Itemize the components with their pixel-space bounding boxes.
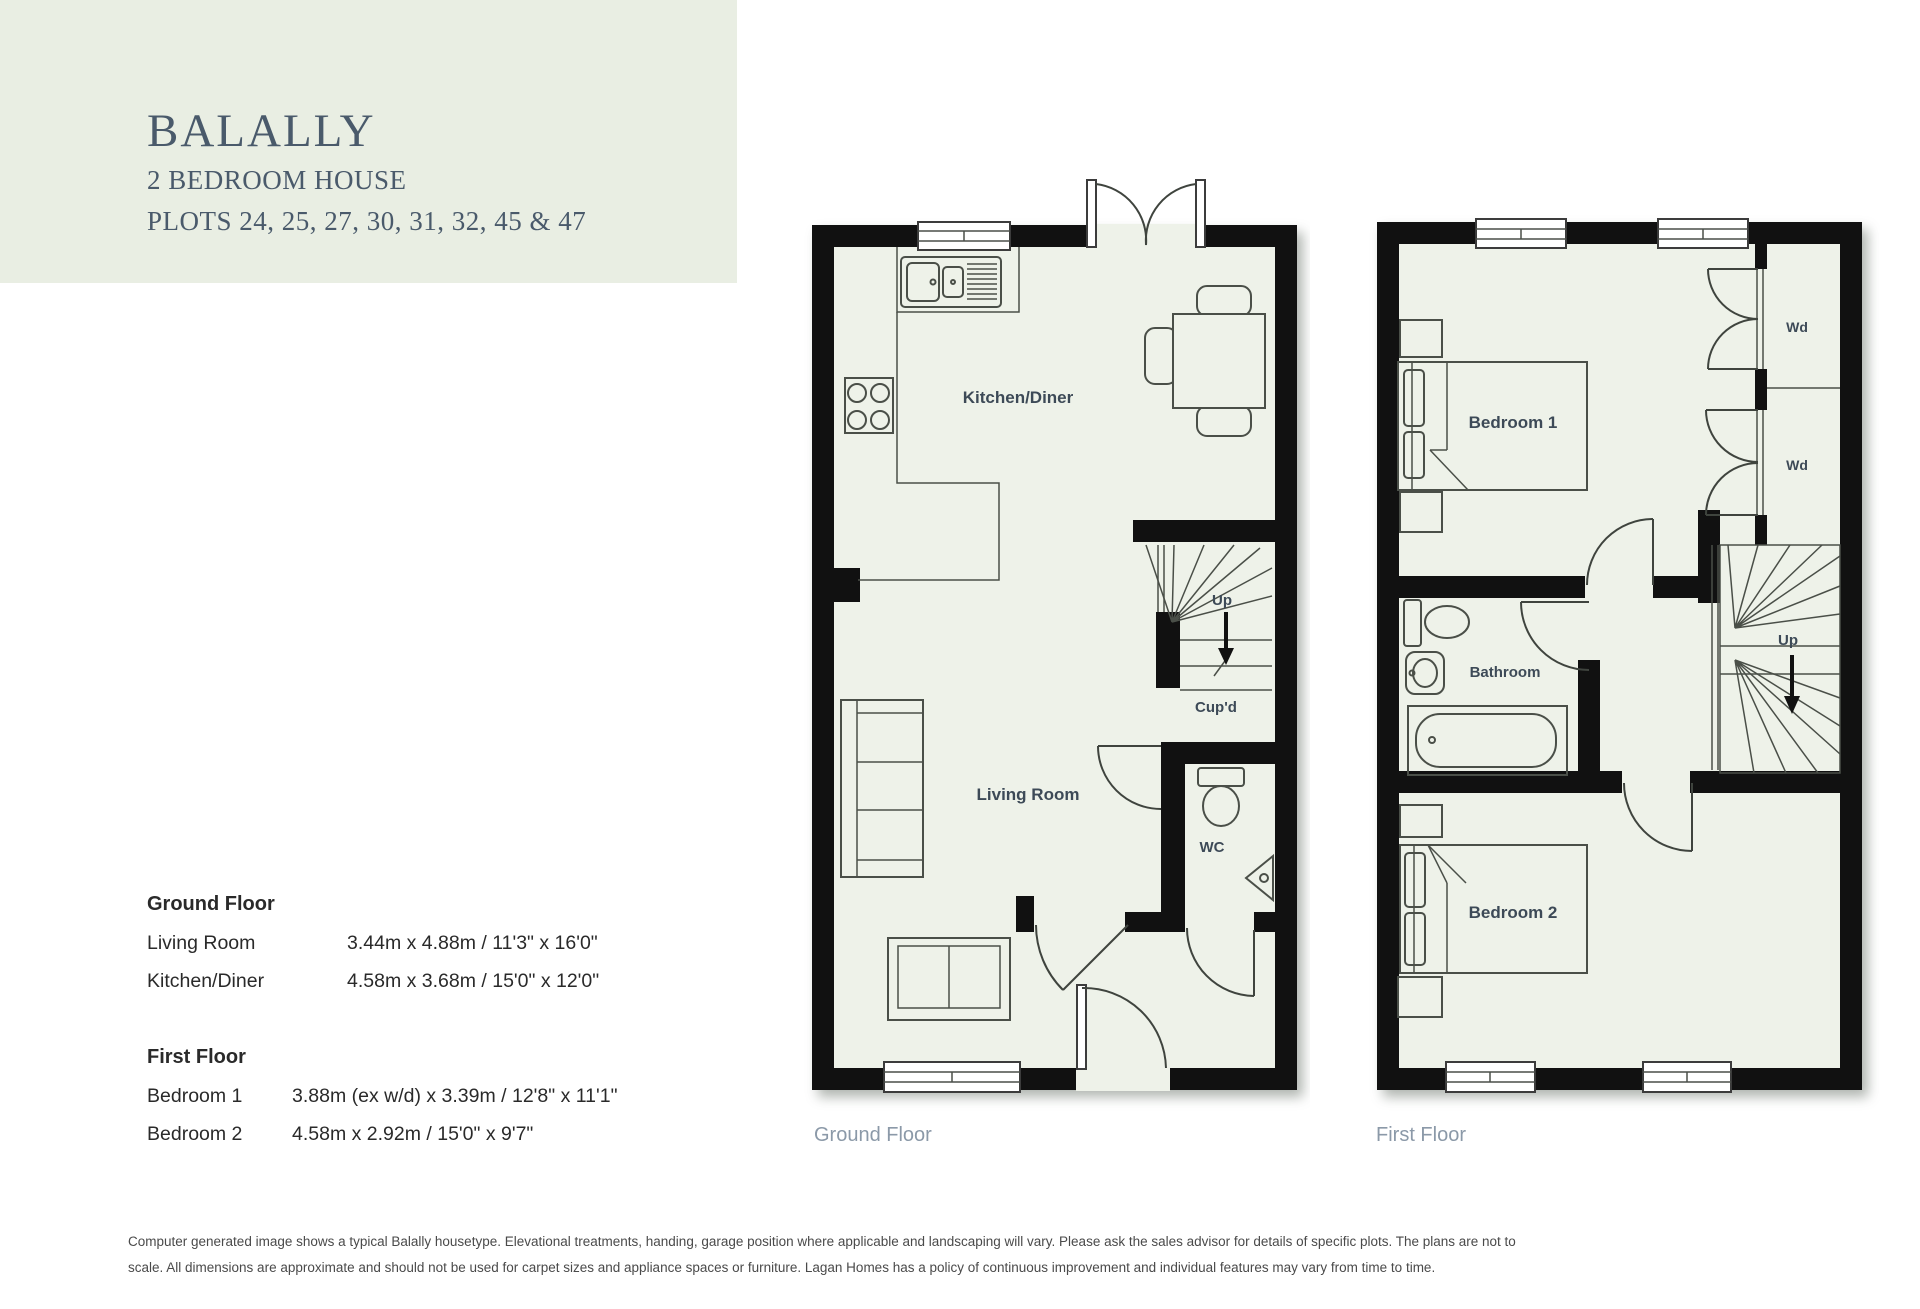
room-name: Bedroom 1	[147, 1085, 292, 1108]
window-icon	[884, 1062, 1020, 1092]
label-wardrobe: Wd	[1786, 457, 1808, 473]
room-size: 3.44m x 4.88m / 11'3" x 16'0"	[347, 932, 598, 955]
ground-floor-plan: Kitchen/Diner Living Room Up Cup'd WC	[770, 140, 1310, 1150]
ground-floor-heading: Ground Floor	[147, 893, 599, 916]
disclaimer-line1: Computer generated image shows a typical…	[128, 1229, 1808, 1255]
page-title: BALALLY	[147, 104, 376, 158]
table-row: Bedroom 2 4.58m x 2.92m / 15'0" x 9'7"	[147, 1123, 618, 1146]
disclaimer-line2: scale. All dimensions are approximate an…	[128, 1255, 1808, 1281]
first-floor-heading: First Floor	[147, 1046, 618, 1069]
room-size: 3.88m (ex w/d) x 3.39m / 12'8" x 11'1"	[292, 1085, 618, 1108]
first-floor-caption: First Floor	[1376, 1124, 1466, 1147]
window-icon	[1446, 1062, 1535, 1092]
room-label-bedroom1: Bedroom 1	[1469, 413, 1558, 432]
first-floor-plan: Bedroom 1 Bedroom 2 Bathroom Up Wd Wd	[1350, 140, 1880, 1150]
ground-floor-caption: Ground Floor	[814, 1124, 932, 1147]
ground-floor-dimensions: Ground Floor Living Room 3.44m x 4.88m /…	[147, 893, 599, 1008]
label-up: Up	[1212, 592, 1232, 609]
disclaimer-text: Computer generated image shows a typical…	[128, 1229, 1808, 1281]
brochure-page: BALALLY 2 BEDROOM HOUSE PLOTS 24, 25, 27…	[0, 0, 1920, 1309]
window-icon	[1643, 1062, 1731, 1092]
room-name: Kitchen/Diner	[147, 970, 347, 993]
table-row: Living Room 3.44m x 4.88m / 11'3" x 16'0…	[147, 932, 599, 955]
plots-list: PLOTS 24, 25, 27, 30, 31, 32, 45 & 47	[147, 206, 586, 237]
window-icon	[1658, 219, 1748, 248]
room-name: Living Room	[147, 932, 347, 955]
room-name: Bedroom 2	[147, 1123, 292, 1146]
label-wc: WC	[1200, 839, 1225, 856]
window-icon	[1476, 219, 1566, 248]
label-wardrobe: Wd	[1786, 319, 1808, 335]
entrance-opening	[1076, 1066, 1170, 1091]
room-label-kitchen-diner: Kitchen/Diner	[963, 388, 1074, 407]
first-floor-dimensions: First Floor Bedroom 1 3.88m (ex w/d) x 3…	[147, 1046, 618, 1161]
first-floor-area	[1399, 244, 1840, 1068]
window-icon	[918, 222, 1010, 250]
page-subtitle: 2 BEDROOM HOUSE	[147, 165, 407, 196]
table-row: Kitchen/Diner 4.58m x 3.68m / 15'0" x 12…	[147, 970, 599, 993]
room-size: 4.58m x 3.68m / 15'0" x 12'0"	[347, 970, 599, 993]
label-up: Up	[1778, 632, 1798, 649]
label-cupboard: Cup'd	[1195, 699, 1237, 716]
room-label-bathroom: Bathroom	[1470, 664, 1541, 681]
table-row: Bedroom 1 3.88m (ex w/d) x 3.39m / 12'8"…	[147, 1085, 618, 1108]
room-size: 4.58m x 2.92m / 15'0" x 9'7"	[292, 1123, 533, 1146]
room-label-bedroom2: Bedroom 2	[1469, 903, 1558, 922]
room-label-living-room: Living Room	[977, 785, 1080, 804]
